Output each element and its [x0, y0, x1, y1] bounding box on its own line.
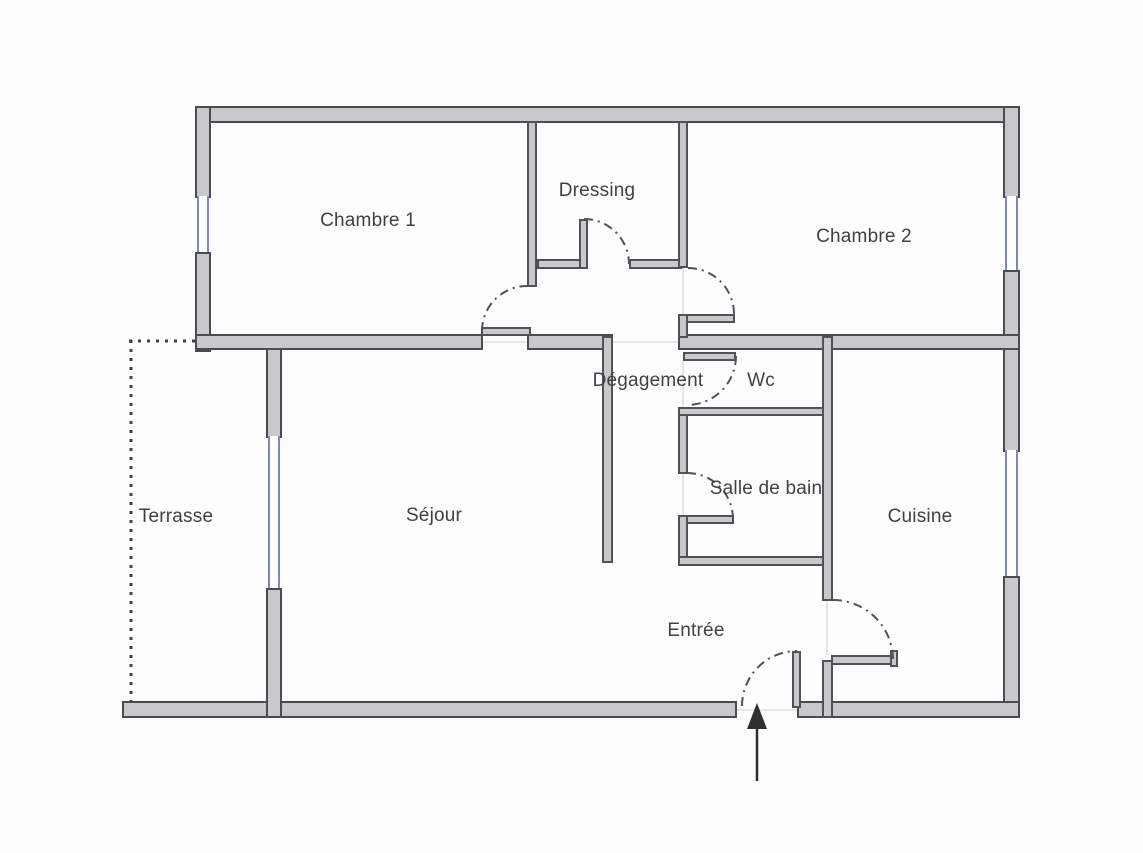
- door-leaf-cuisine: [831, 655, 897, 665]
- wall-dressing-bottom-right: [629, 259, 683, 269]
- room-label-chambre1: Chambre 1: [320, 210, 416, 232]
- room-label-terrasse: Terrasse: [139, 506, 213, 528]
- room-label-cuisine: Cuisine: [888, 506, 953, 528]
- room-label-chambre2: Chambre 2: [816, 226, 912, 248]
- wall-cuisine-left-lower: [822, 660, 833, 718]
- door-leaf-cuisine-endcap: [890, 650, 898, 667]
- wall-band-center: [527, 334, 613, 350]
- door-leaf-sdb: [686, 515, 734, 524]
- door-arc-dressing: [584, 219, 629, 264]
- floor-plan: Chambre 1 Dressing Chambre 2 Dégagement …: [0, 0, 1143, 853]
- wall-dressing-chambre2: [678, 121, 688, 268]
- door-leaf-wc: [683, 352, 736, 361]
- plan-symbols-layer: [0, 0, 1143, 853]
- door-leaf-dressing: [579, 219, 588, 269]
- door-leaf-chambre1: [481, 327, 531, 336]
- door-leaf-chambre2: [683, 314, 735, 323]
- wall-band-east: [678, 334, 1020, 350]
- wall-sdb-bottom: [678, 556, 833, 566]
- window-chambre1: [197, 196, 209, 254]
- door-arc-cuisine: [833, 600, 893, 660]
- wall-outer-right-upper: [1003, 106, 1020, 198]
- door-arc-entrance: [742, 651, 797, 706]
- room-label-degagement: Dégagement: [593, 370, 704, 392]
- wall-dressing-bottom-left: [537, 259, 583, 269]
- door-arc-chambre1: [482, 286, 527, 331]
- room-label-sejour: Séjour: [406, 505, 462, 527]
- wall-outer-right-middle: [1003, 270, 1020, 452]
- room-label-salle-de-bain: Salle de bain: [710, 478, 822, 500]
- door-arc-chambre2: [688, 268, 734, 314]
- wall-wc-sdb-divider: [678, 407, 833, 416]
- wall-band-west: [195, 334, 483, 350]
- wall-outer-top: [195, 106, 1020, 123]
- room-label-wc: Wc: [747, 370, 775, 392]
- wall-chambre1-dressing: [527, 121, 537, 287]
- wall-outer-right-lower: [1003, 576, 1020, 718]
- door-leaf-entrance: [792, 651, 801, 708]
- window-cuisine: [1005, 450, 1018, 578]
- wall-chambre2-hinge-stub: [678, 314, 688, 338]
- wall-outer-bottom-left: [122, 701, 737, 718]
- window-sejour-terrasse: [268, 436, 280, 590]
- wall-sejour-left-lower: [266, 588, 282, 718]
- wall-outer-left-upper: [195, 106, 211, 198]
- room-label-entree: Entrée: [667, 620, 724, 642]
- wall-sdb-left-upper: [678, 414, 688, 474]
- entrance-arrow-icon: [747, 703, 767, 781]
- window-chambre2: [1005, 196, 1018, 272]
- entrance-arrow-head: [747, 703, 767, 729]
- room-label-dressing: Dressing: [559, 180, 636, 202]
- wall-cuisine-left-upper: [822, 336, 833, 601]
